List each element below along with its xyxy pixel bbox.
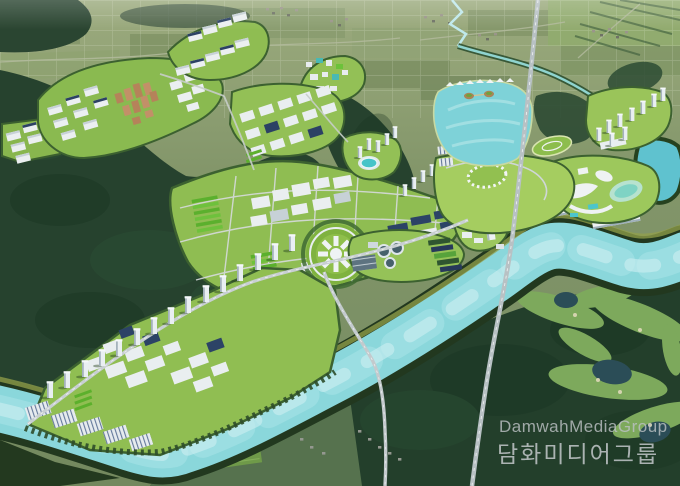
scene-canvas bbox=[0, 0, 680, 486]
atmospheric-haze bbox=[0, 0, 680, 30]
water-treatment-plant bbox=[349, 230, 464, 282]
reservoir-lake bbox=[434, 78, 532, 166]
aerial-rendering: DamwahMediaGroup 담화미디어그룹 bbox=[0, 0, 680, 486]
